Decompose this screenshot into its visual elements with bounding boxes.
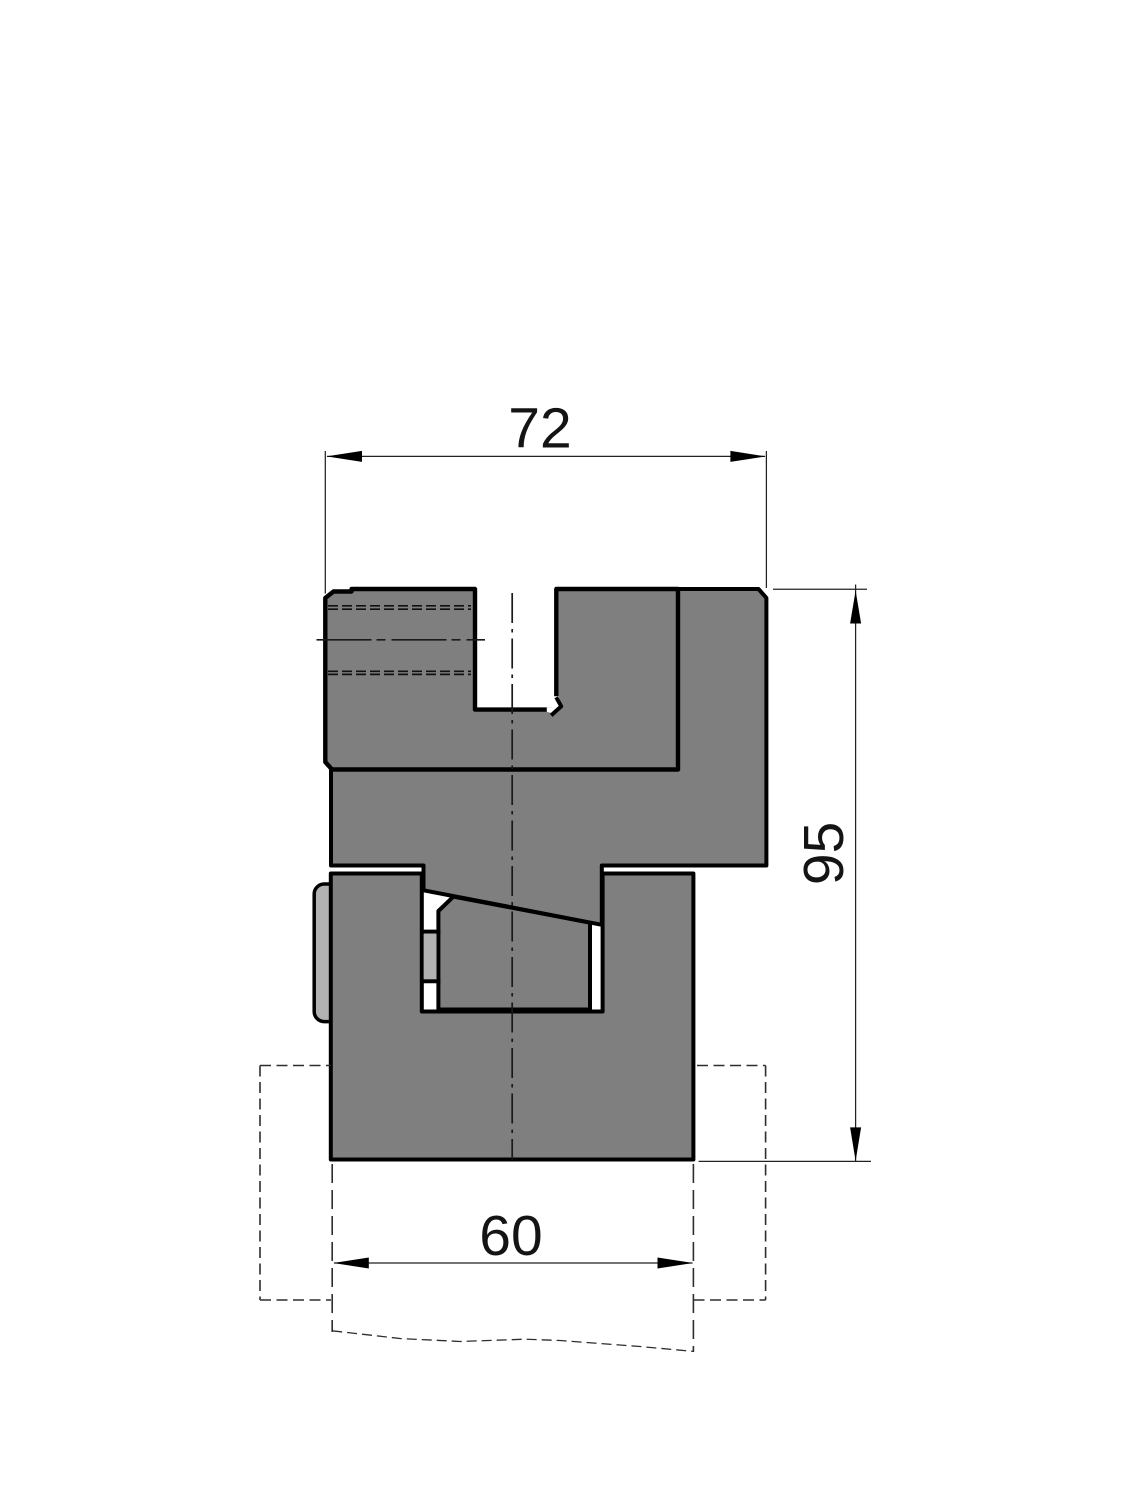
- svg-text:72: 72: [508, 396, 571, 460]
- svg-text:95: 95: [792, 822, 856, 885]
- svg-text:60: 60: [479, 1204, 542, 1268]
